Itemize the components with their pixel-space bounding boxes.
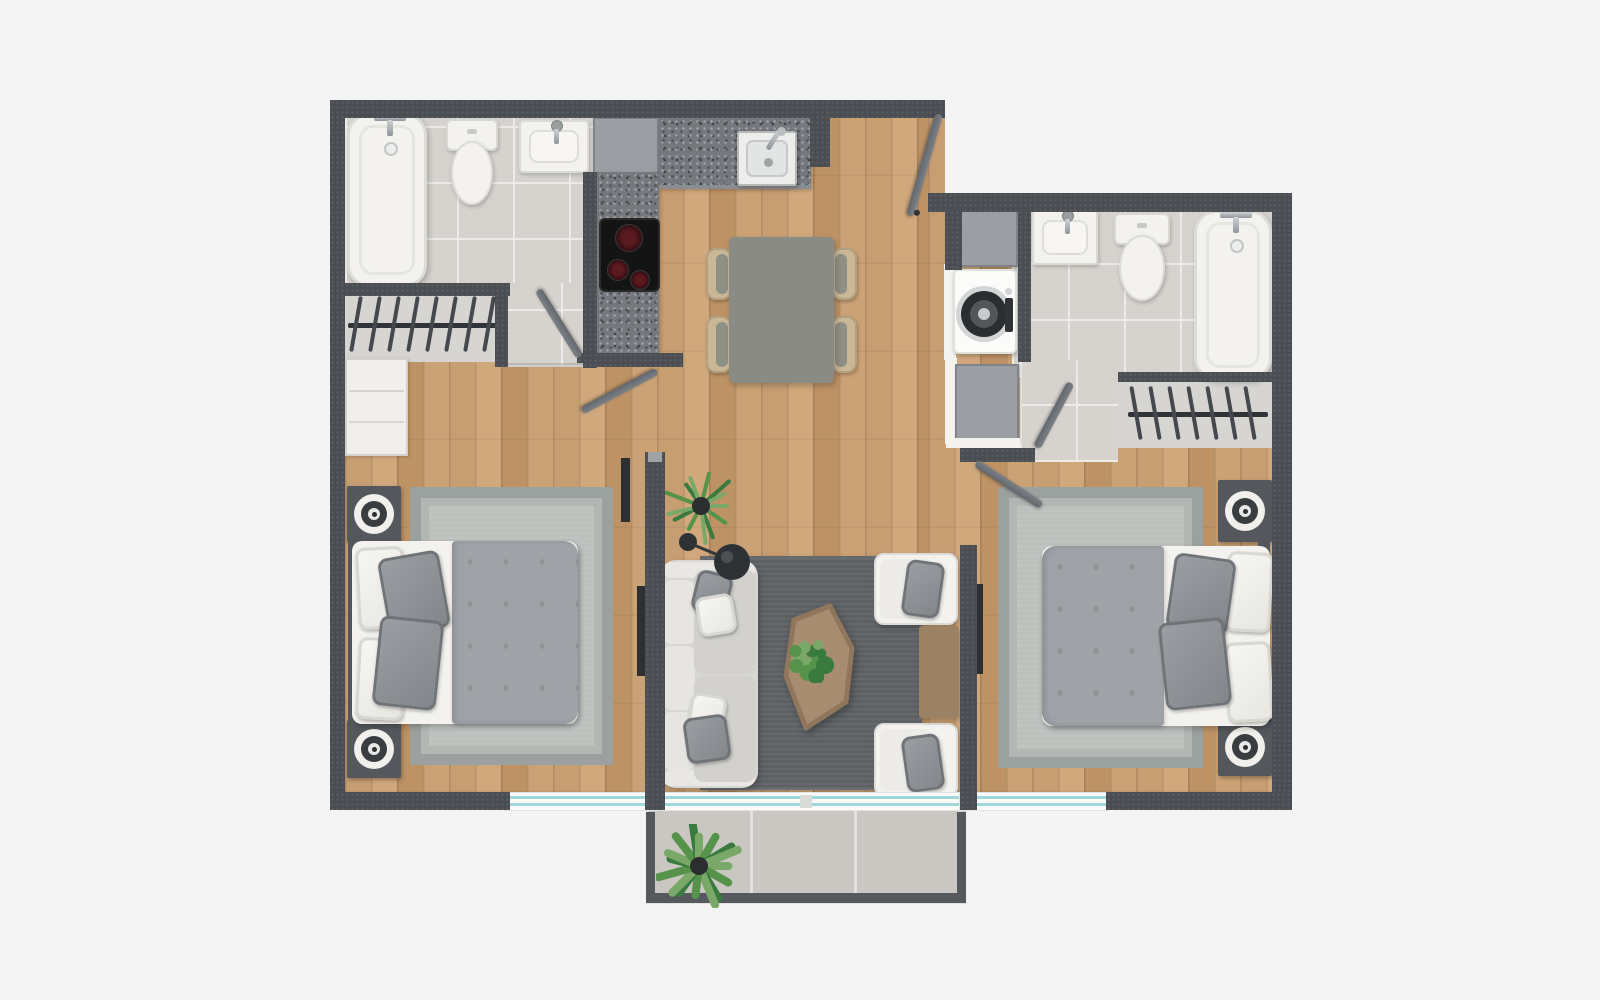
bedroom2-door xyxy=(974,460,1044,509)
bedroom1-door xyxy=(580,367,659,414)
entrance-door-handle xyxy=(913,209,920,216)
entrance-door xyxy=(906,113,943,217)
bathroom2-door xyxy=(1033,381,1074,449)
floor-plan-stage xyxy=(0,0,1600,1000)
bathroom1-door xyxy=(535,288,584,359)
doors-layer xyxy=(0,0,1600,1000)
